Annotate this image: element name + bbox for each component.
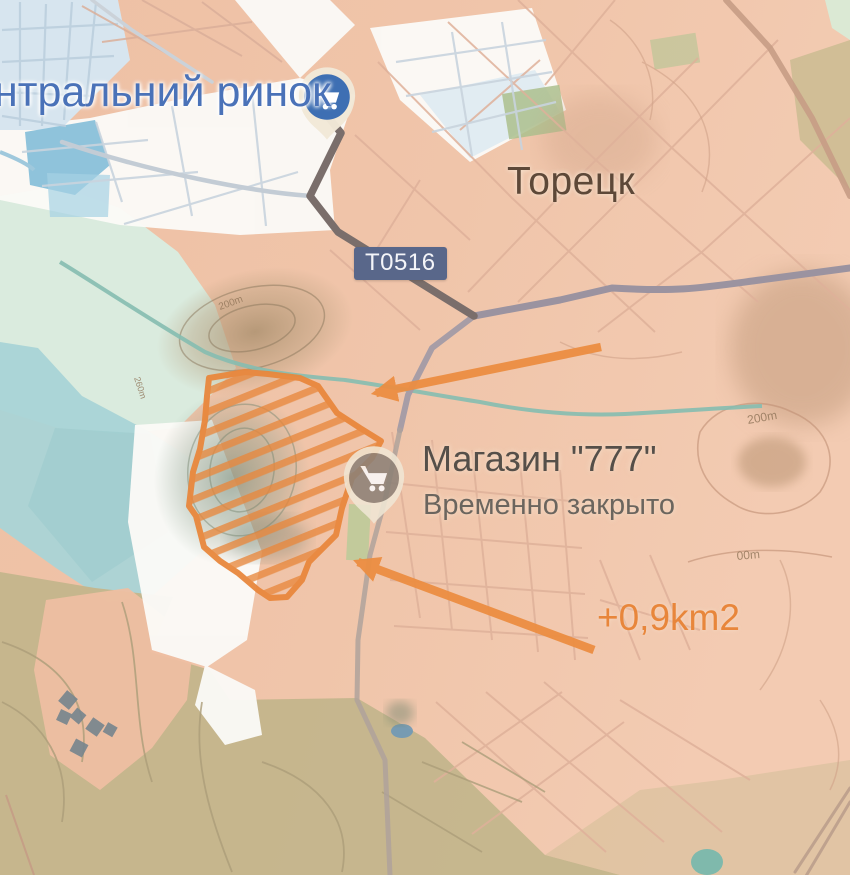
poi-title-label[interactable]: Магазин "777"	[422, 440, 657, 478]
area-gain-annotation: +0,9km2	[597, 599, 740, 638]
market-label[interactable]: нтральний ринок	[0, 70, 331, 115]
road-number-badge: T0516	[354, 247, 447, 280]
city-label: Торецк	[507, 162, 635, 203]
map-canvas[interactable]: 200m 00m 200m 260m нтральний ринок Торец…	[0, 0, 850, 875]
contour-label: 00m	[736, 547, 760, 563]
poi-status-label: Временно закрыто	[423, 490, 675, 520]
